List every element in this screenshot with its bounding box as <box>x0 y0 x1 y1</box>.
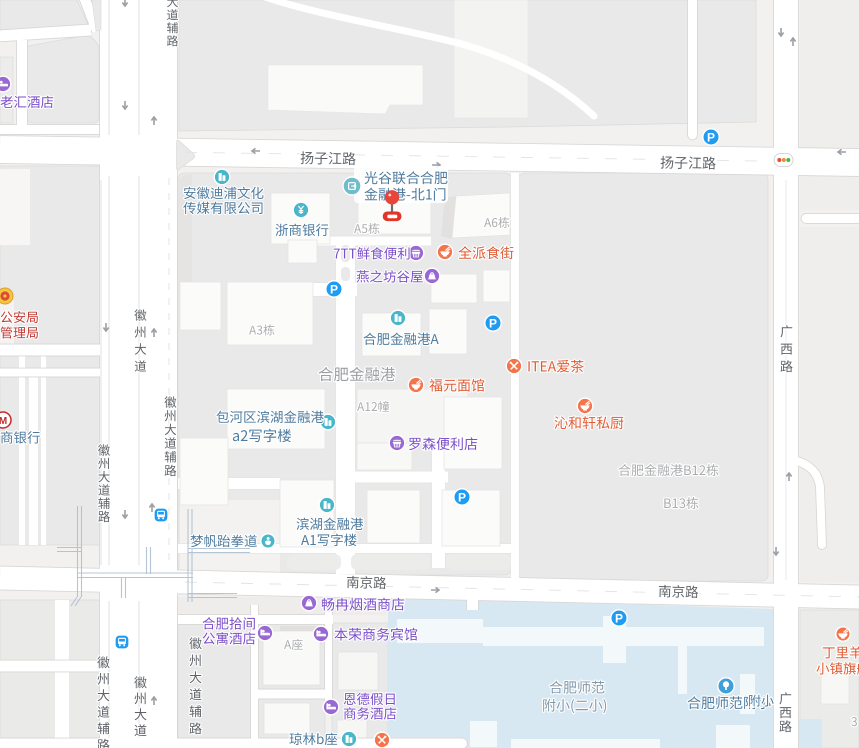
svg-text:P: P <box>489 316 497 330</box>
svg-text:P: P <box>707 130 715 144</box>
svg-text:P: P <box>330 282 338 296</box>
svg-text:P: P <box>615 611 623 625</box>
svg-text:M: M <box>0 416 7 427</box>
svg-text:P: P <box>458 490 466 504</box>
